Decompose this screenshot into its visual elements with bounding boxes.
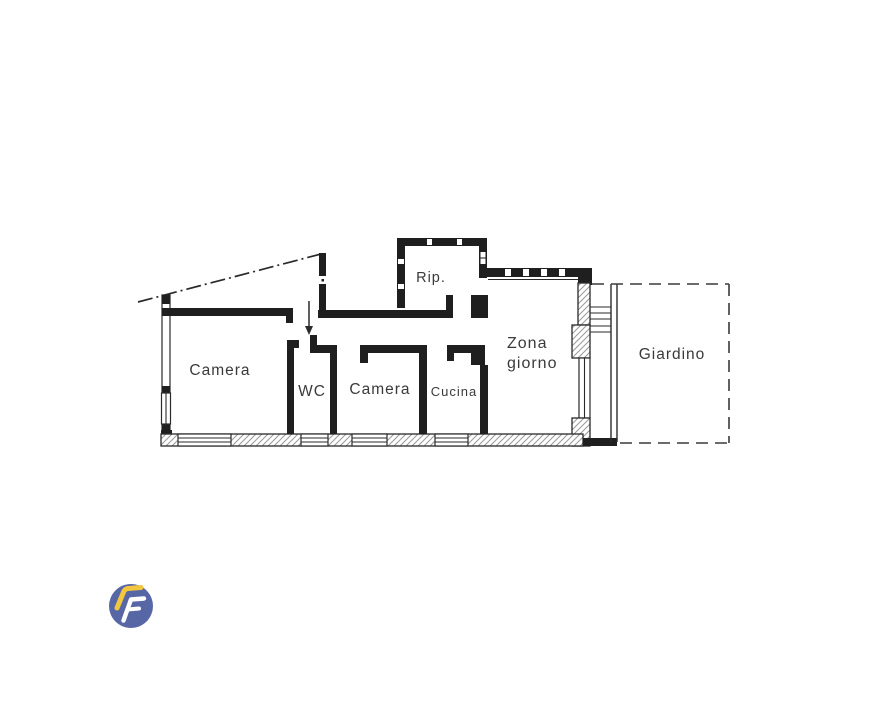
room-label-giardino: Giardino [639, 346, 706, 363]
camera1-right-wall [287, 340, 294, 434]
camera2-top-wall [360, 345, 427, 353]
cucina-right-wall [480, 365, 488, 434]
left-exterior-wall [161, 295, 172, 446]
floor-plan-drawing: Camera WC Camera Cucina Zona giorno Rip.… [0, 0, 875, 707]
stairs [590, 284, 617, 442]
room-label-wc: WC [298, 383, 326, 400]
window-cucina [435, 434, 468, 446]
entrance-arrow [305, 301, 313, 335]
cucina-top-wall [447, 345, 485, 353]
agency-logo [109, 584, 153, 628]
floorplan-page: Camera WC Camera Cucina Zona giorno Rip.… [0, 0, 875, 707]
window-wc [301, 434, 328, 446]
gate-wall [318, 253, 327, 310]
camera1-top-wall [162, 308, 293, 323]
glass-door-right [579, 358, 590, 418]
room-label-camera-2: Camera [349, 381, 410, 398]
window-camera1 [178, 434, 231, 446]
room-label-cucina: Cucina [431, 384, 477, 399]
zona-giorno-window-band [479, 268, 592, 285]
camera2-right-wall [419, 345, 427, 434]
bottom-exterior-wall [161, 434, 617, 446]
room-label-ripostiglio: Rip. [416, 270, 446, 286]
room-label-zona-giorno-line2: giorno [507, 355, 557, 372]
right-exterior-wall [572, 283, 590, 446]
f-logo-middle-bar-icon [128, 609, 140, 610]
garden-boundary [592, 284, 729, 443]
wc-right-wall [330, 345, 337, 434]
window-camera2 [352, 434, 387, 446]
room-label-camera-1: Camera [189, 362, 250, 379]
window-left [162, 393, 171, 424]
room-label-zona-giorno-line1: Zona [507, 335, 547, 352]
